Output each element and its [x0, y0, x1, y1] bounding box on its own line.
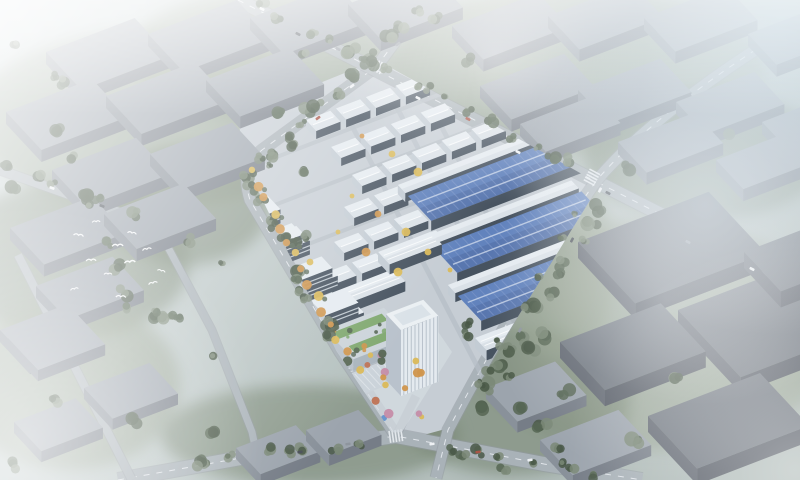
haze-overlay [0, 0, 800, 480]
aerial-rendering-canvas [0, 0, 800, 480]
aerial-rendering-stage [0, 0, 800, 480]
